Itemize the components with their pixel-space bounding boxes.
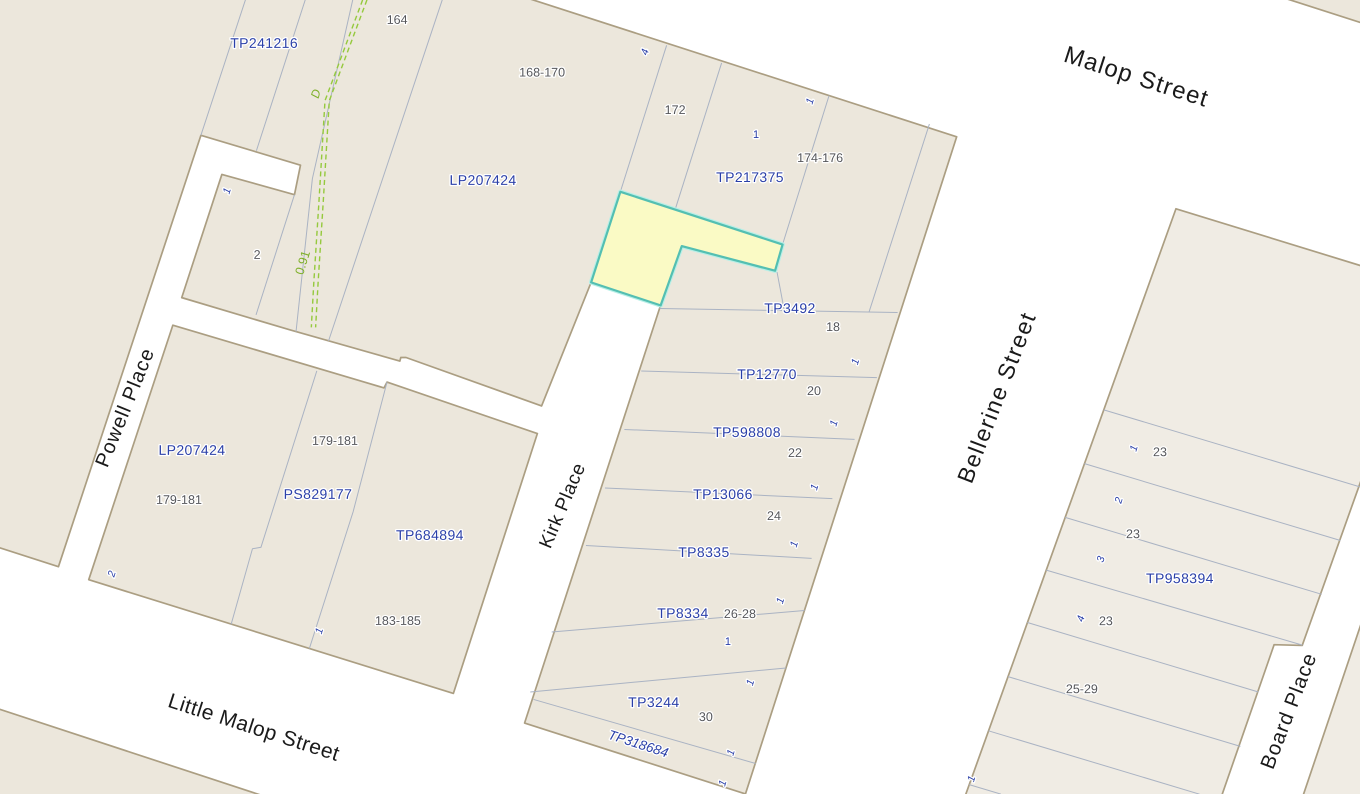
svg-text:179-181: 179-181: [156, 493, 202, 507]
svg-text:TP958394: TP958394: [1146, 570, 1214, 586]
svg-text:164: 164: [387, 13, 408, 27]
svg-text:24: 24: [767, 509, 781, 523]
svg-text:TP8335: TP8335: [678, 544, 729, 560]
svg-text:23: 23: [1099, 614, 1113, 628]
svg-text:25-29: 25-29: [1066, 682, 1098, 696]
svg-text:22: 22: [788, 446, 802, 460]
svg-text:172: 172: [665, 103, 686, 117]
svg-text:LP207424: LP207424: [450, 172, 517, 188]
svg-text:23: 23: [1126, 527, 1140, 541]
svg-text:179-181: 179-181: [312, 434, 358, 448]
svg-text:TP684894: TP684894: [396, 527, 464, 543]
svg-text:174-176: 174-176: [797, 151, 843, 165]
svg-text:1: 1: [753, 129, 759, 141]
svg-text:26-28: 26-28: [724, 607, 756, 621]
svg-text:30: 30: [699, 710, 713, 724]
svg-text:TP13066: TP13066: [693, 486, 753, 502]
svg-text:PS829177: PS829177: [284, 486, 353, 502]
svg-text:183-185: 183-185: [375, 614, 421, 628]
svg-text:168-170: 168-170: [519, 65, 565, 79]
svg-text:18: 18: [826, 320, 840, 334]
svg-text:1: 1: [725, 636, 731, 648]
svg-text:TP3492: TP3492: [764, 300, 815, 316]
svg-text:TP3244: TP3244: [628, 694, 679, 710]
svg-text:20: 20: [807, 384, 821, 398]
svg-text:TP241216: TP241216: [230, 35, 298, 51]
svg-text:TP8334: TP8334: [657, 605, 708, 621]
svg-text:23: 23: [1153, 445, 1167, 459]
svg-text:TP12770: TP12770: [737, 366, 797, 382]
svg-text:TP598808: TP598808: [713, 424, 781, 440]
svg-text:2: 2: [254, 248, 261, 262]
svg-text:LP207424: LP207424: [158, 442, 225, 458]
svg-text:TP217375: TP217375: [716, 169, 784, 185]
